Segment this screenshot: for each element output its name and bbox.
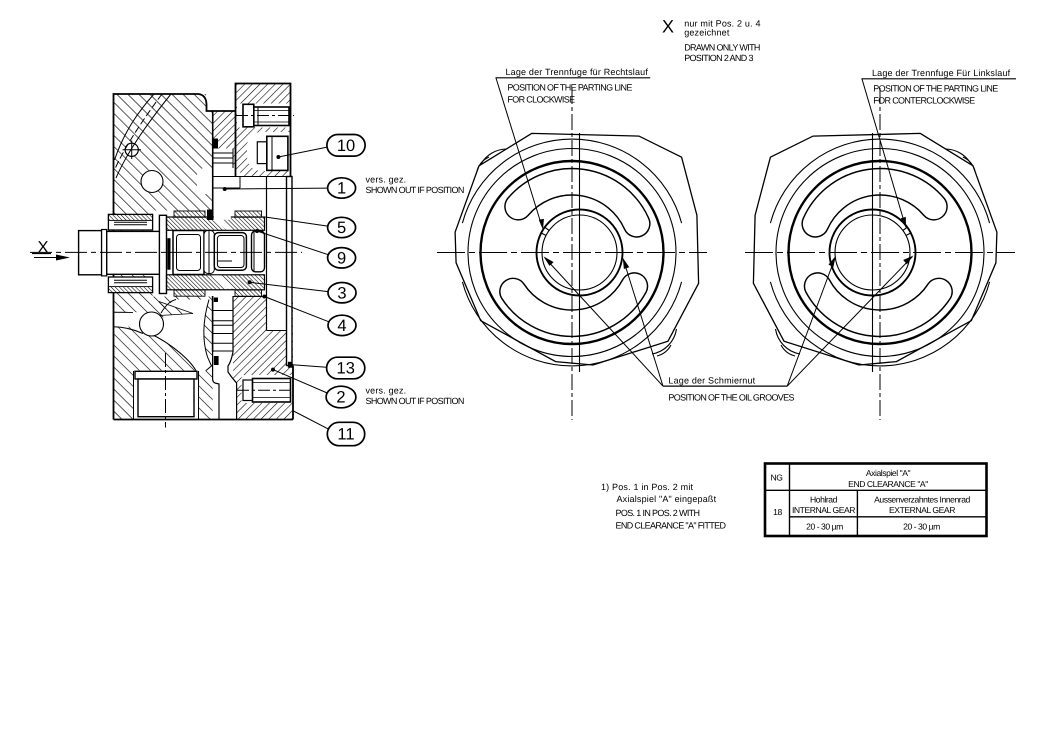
svg-text:vers. gez.: vers. gez. bbox=[366, 386, 407, 396]
svg-text:1) Pos. 1 in Pos. 2 mit: 1) Pos. 1 in Pos. 2 mit bbox=[601, 482, 693, 492]
svg-text:13: 13 bbox=[337, 360, 355, 378]
svg-text:gezeichnet: gezeichnet bbox=[684, 28, 730, 38]
svg-text:9: 9 bbox=[337, 249, 346, 267]
svg-text:FOR CONTERCLOCKWISE: FOR CONTERCLOCKWISE bbox=[873, 96, 975, 106]
svg-text:FOR CLOCKWISE: FOR CLOCKWISE bbox=[507, 95, 575, 105]
svg-text:Lage der Schmiernut: Lage der Schmiernut bbox=[668, 376, 755, 386]
svg-text:Axialspiel "A": Axialspiel "A" bbox=[866, 468, 911, 478]
svg-text:10: 10 bbox=[337, 137, 355, 155]
svg-text:POSITION OF THE PARTING LINE: POSITION OF THE PARTING LINE bbox=[507, 83, 632, 93]
svg-text:2: 2 bbox=[336, 389, 345, 407]
svg-text:X: X bbox=[662, 17, 674, 37]
svg-text:SHOWN OUT IF POSITION: SHOWN OUT IF POSITION bbox=[366, 185, 464, 195]
svg-text:POSITION OF THE OIL GROOVES: POSITION OF THE OIL GROOVES bbox=[668, 393, 794, 403]
svg-text:EXTERNAL GEAR: EXTERNAL GEAR bbox=[889, 505, 955, 515]
svg-text:POS. 1 IN POS. 2 WITH: POS. 1 IN POS. 2 WITH bbox=[616, 508, 700, 518]
svg-text:20 - 30 µm: 20 - 30 µm bbox=[903, 522, 940, 532]
svg-text:INTERNAL GEAR: INTERNAL GEAR bbox=[792, 505, 855, 515]
svg-text:5: 5 bbox=[337, 219, 346, 237]
svg-text:4: 4 bbox=[337, 317, 346, 335]
svg-text:POSITION OF THE PARTING LINE: POSITION OF THE PARTING LINE bbox=[873, 84, 998, 94]
svg-text:1: 1 bbox=[337, 180, 346, 198]
svg-text:Axialspiel "A" eingepaßt: Axialspiel "A" eingepaßt bbox=[617, 494, 717, 504]
svg-text:POSITION 2 AND 3: POSITION 2 AND 3 bbox=[684, 53, 753, 63]
svg-text:Aussenverzahntes Innenrad: Aussenverzahntes Innenrad bbox=[874, 495, 970, 505]
svg-text:Lage der Trennfuge Für Linksla: Lage der Trennfuge Für Linkslauf bbox=[872, 68, 1011, 78]
svg-text:END CLEARANCE "A": END CLEARANCE "A" bbox=[848, 479, 928, 489]
svg-text:Lage der Trennfuge für Rechtsl: Lage der Trennfuge für Rechtslauf bbox=[506, 67, 649, 77]
svg-text:Hohlrad: Hohlrad bbox=[810, 495, 838, 505]
svg-text:END CLEARANCE "A" FITTED: END CLEARANCE "A" FITTED bbox=[616, 521, 727, 531]
svg-text:18: 18 bbox=[773, 507, 782, 517]
svg-text:DRAWN ONLY WITH: DRAWN ONLY WITH bbox=[684, 43, 760, 53]
svg-text:vers. gez.: vers. gez. bbox=[366, 175, 407, 185]
svg-text:NG: NG bbox=[771, 473, 784, 483]
svg-text:SHOWN OUT IF POSITION: SHOWN OUT IF POSITION bbox=[366, 396, 464, 406]
svg-text:3: 3 bbox=[337, 284, 346, 302]
svg-text:20 - 30 µm: 20 - 30 µm bbox=[806, 522, 843, 532]
svg-text:11: 11 bbox=[337, 426, 354, 444]
